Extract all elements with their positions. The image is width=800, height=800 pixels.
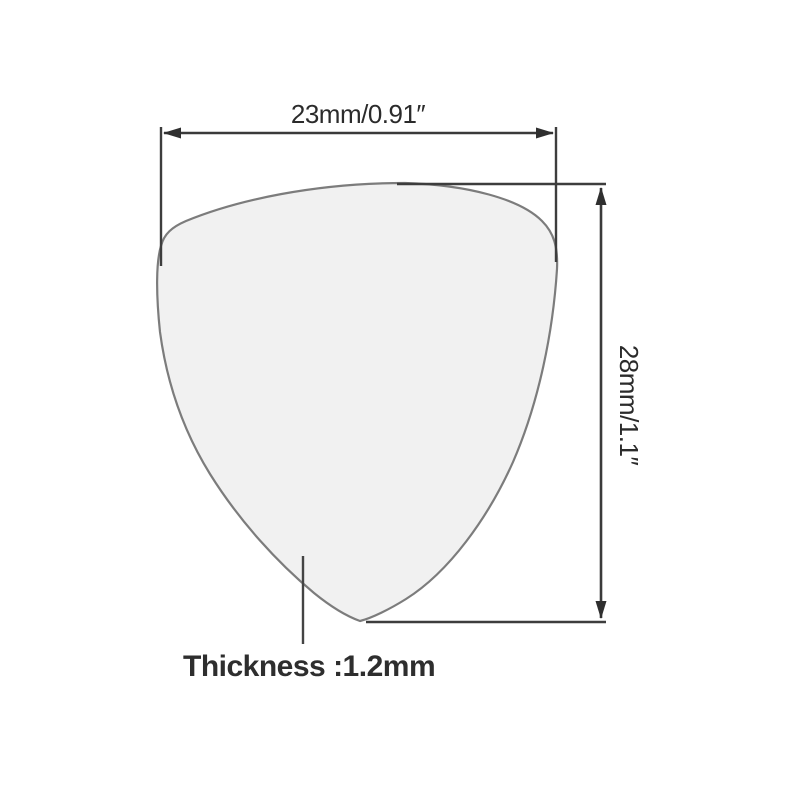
height-dimension-label: 28mm/1.1″ xyxy=(614,345,644,466)
width-dimension-label: 23mm/0.91″ xyxy=(291,99,426,129)
pick-dimension-diagram: 23mm/0.91″ 28mm/1.1″ Thickness :1.2mm xyxy=(0,0,800,800)
thickness-label: Thickness :1.2mm xyxy=(183,650,435,683)
diagram-canvas: 23mm/0.91″ 28mm/1.1″ Thickness :1.2mm xyxy=(0,0,800,800)
width-arrow-right-icon xyxy=(536,128,554,139)
guitar-pick-shape xyxy=(157,183,557,621)
height-arrow-top-icon xyxy=(596,187,607,205)
height-arrow-bottom-icon xyxy=(596,601,607,619)
width-arrow-left-icon xyxy=(163,128,181,139)
